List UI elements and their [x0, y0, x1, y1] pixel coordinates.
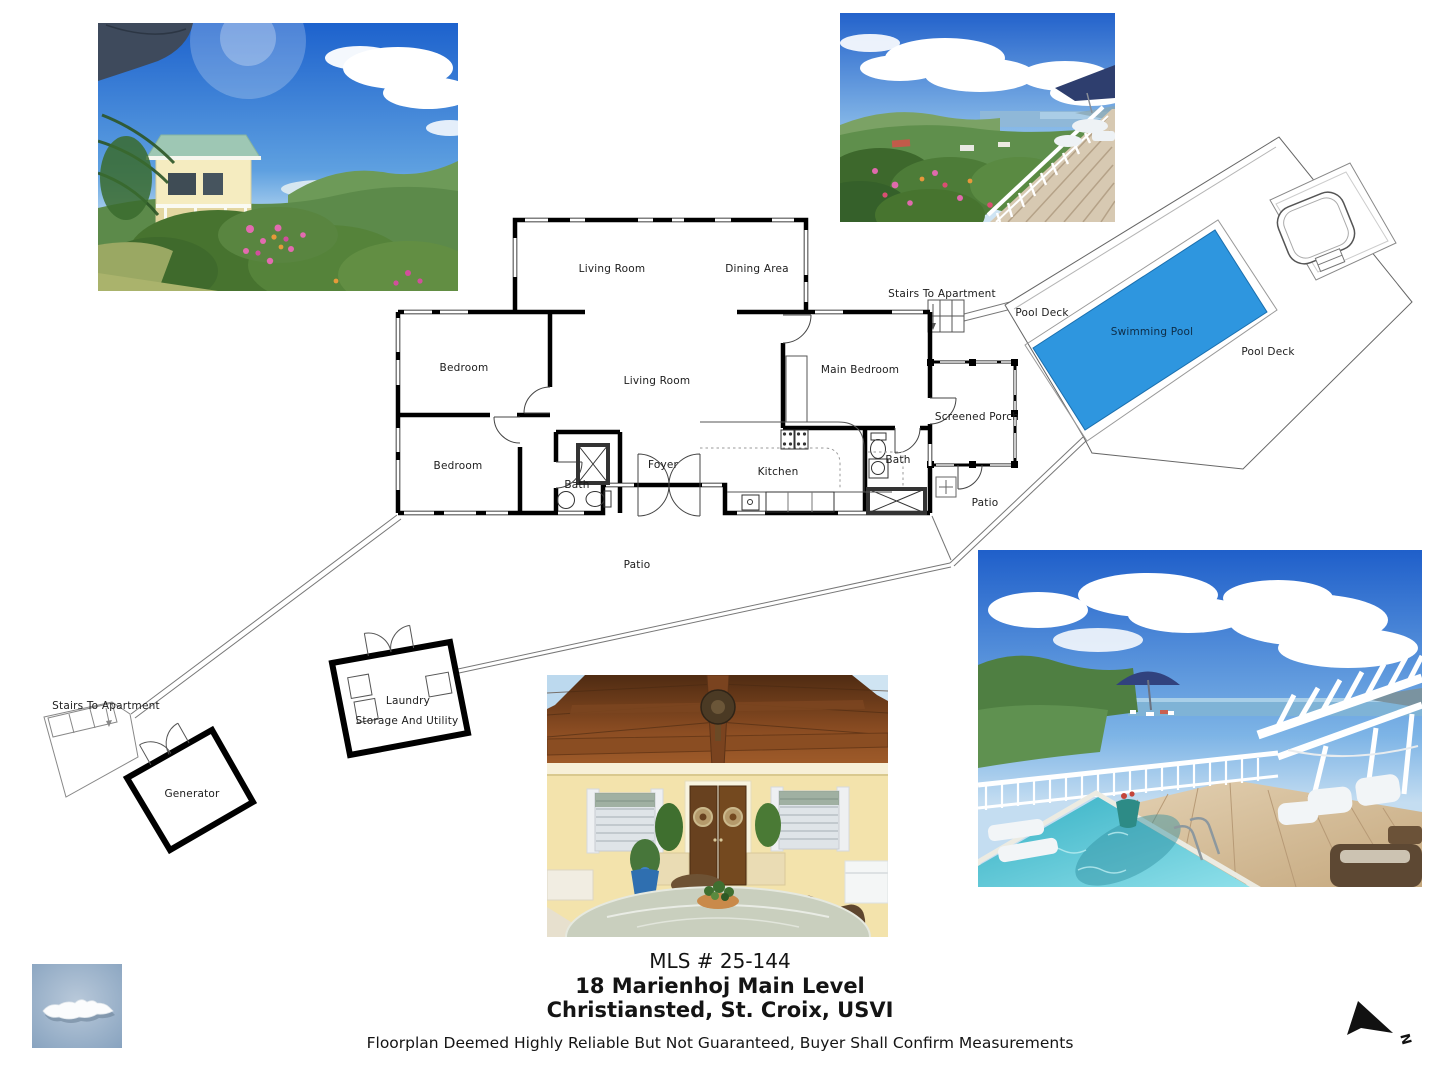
- address-line-1: 18 Marienhoj Main Level: [0, 974, 1440, 998]
- laundry-room: [332, 625, 468, 755]
- room-label-foyer: Foyer: [648, 459, 679, 471]
- generator-room: [127, 723, 253, 850]
- room-label-patio-right: Patio: [972, 497, 999, 509]
- fixtures: [558, 356, 926, 513]
- patio-outlines: [131, 292, 1086, 718]
- room-label-storage: Storage And Utility: [356, 715, 459, 727]
- room-label-living-room-top: Living Room: [579, 263, 646, 275]
- room-label-bath-left: Bath: [564, 479, 589, 491]
- stairs-top: [928, 300, 964, 332]
- mls-number: MLS # 25-144: [0, 948, 1440, 974]
- room-label-stairs-top: Stairs To Apartment: [888, 288, 996, 300]
- address-line-2: Christiansted, St. Croix, USVI: [0, 998, 1440, 1022]
- stairs-bottom: [44, 702, 138, 797]
- listing-text-block: MLS # 25-144 18 Marienhoj Main Level Chr…: [0, 948, 1440, 1052]
- photo-deck-view: [840, 13, 1115, 222]
- room-label-bath-right: Bath: [885, 454, 910, 466]
- room-label-bedroom-lower: Bedroom: [434, 460, 483, 472]
- disclaimer-text: Floorplan Deemed Highly Reliable But Not…: [0, 1034, 1440, 1052]
- screened-porch-walls: [927, 359, 1018, 497]
- room-label-pool-deck-right: Pool Deck: [1241, 346, 1295, 358]
- room-label-dining-area: Dining Area: [725, 263, 789, 275]
- room-label-kitchen: Kitchen: [758, 466, 799, 478]
- room-label-stairs-bottom: Stairs To Apartment: [52, 700, 160, 712]
- room-label-generator: Generator: [164, 788, 220, 800]
- right-window: [771, 787, 849, 851]
- room-label-pool-deck-left: Pool Deck: [1015, 307, 1069, 319]
- room-label-laundry: Laundry: [386, 695, 430, 707]
- photo-porch-entry: [547, 675, 888, 937]
- room-label-bedroom-upper: Bedroom: [440, 362, 489, 374]
- room-label-screened-porch: Screened Porch: [935, 411, 1019, 423]
- room-label-patio-main: Patio: [624, 559, 651, 571]
- entry-doors: [685, 781, 751, 885]
- room-label-living-room-main: Living Room: [624, 375, 691, 387]
- room-label-main-bedroom: Main Bedroom: [821, 364, 899, 376]
- flyer-page: Living Room Dining Area Bedroom Bedroom …: [0, 0, 1440, 1080]
- photo-hillside-villa: [98, 23, 458, 291]
- photo-pool-deck: [978, 550, 1422, 887]
- room-label-swimming-pool: Swimming Pool: [1111, 326, 1194, 338]
